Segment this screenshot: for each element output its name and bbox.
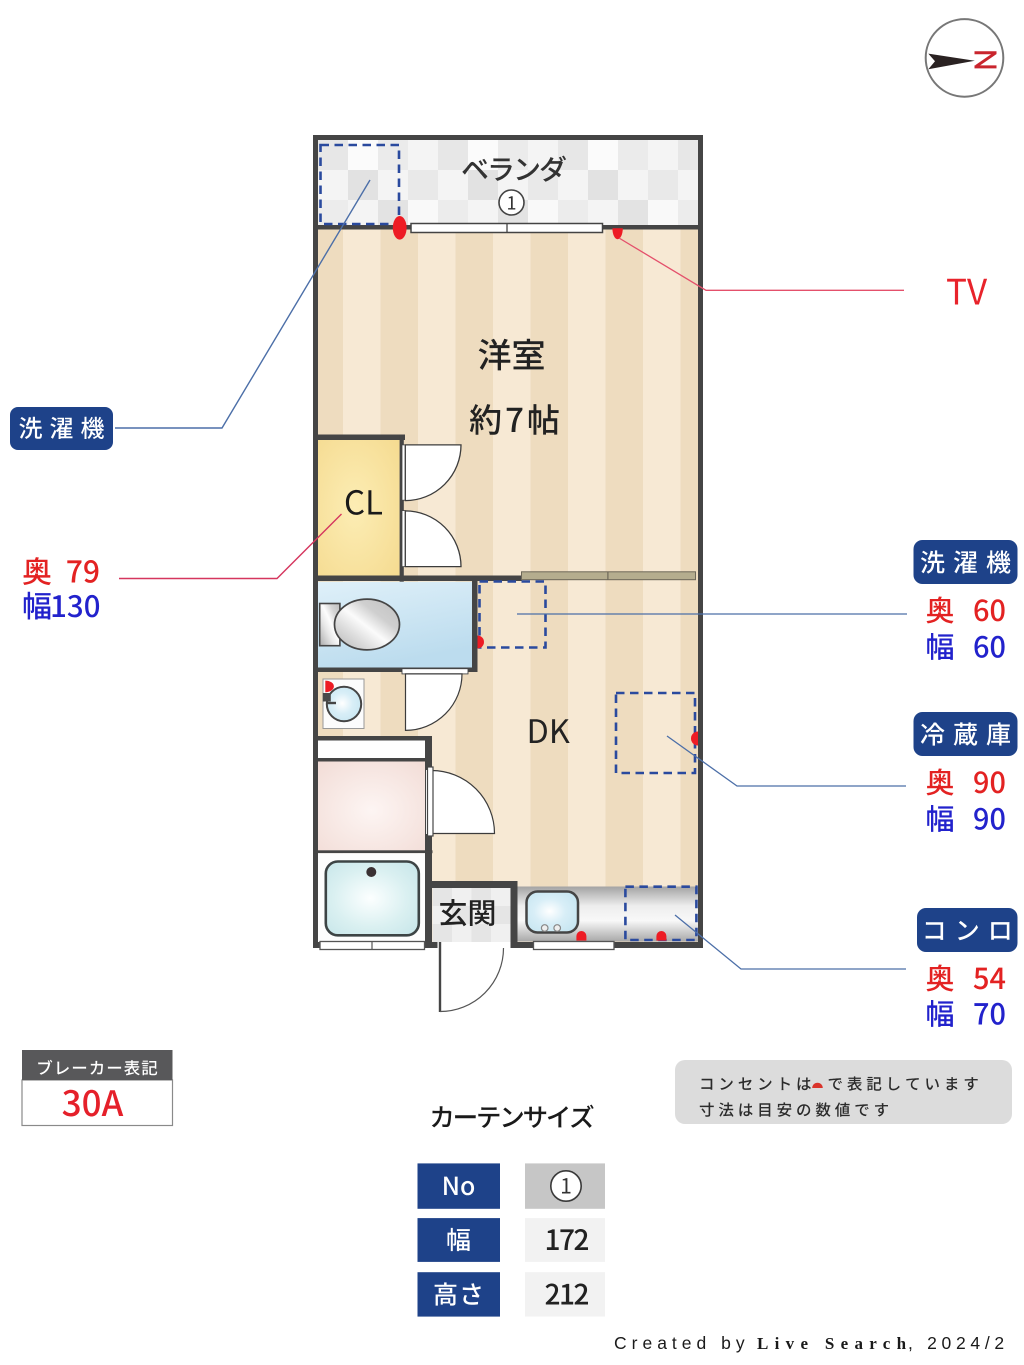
svg-text:Created by: Created by [614,1333,750,1353]
svg-text:Live Search: Live Search [757,1334,912,1353]
svg-text:, 2024/2: , 2024/2 [908,1333,1009,1353]
